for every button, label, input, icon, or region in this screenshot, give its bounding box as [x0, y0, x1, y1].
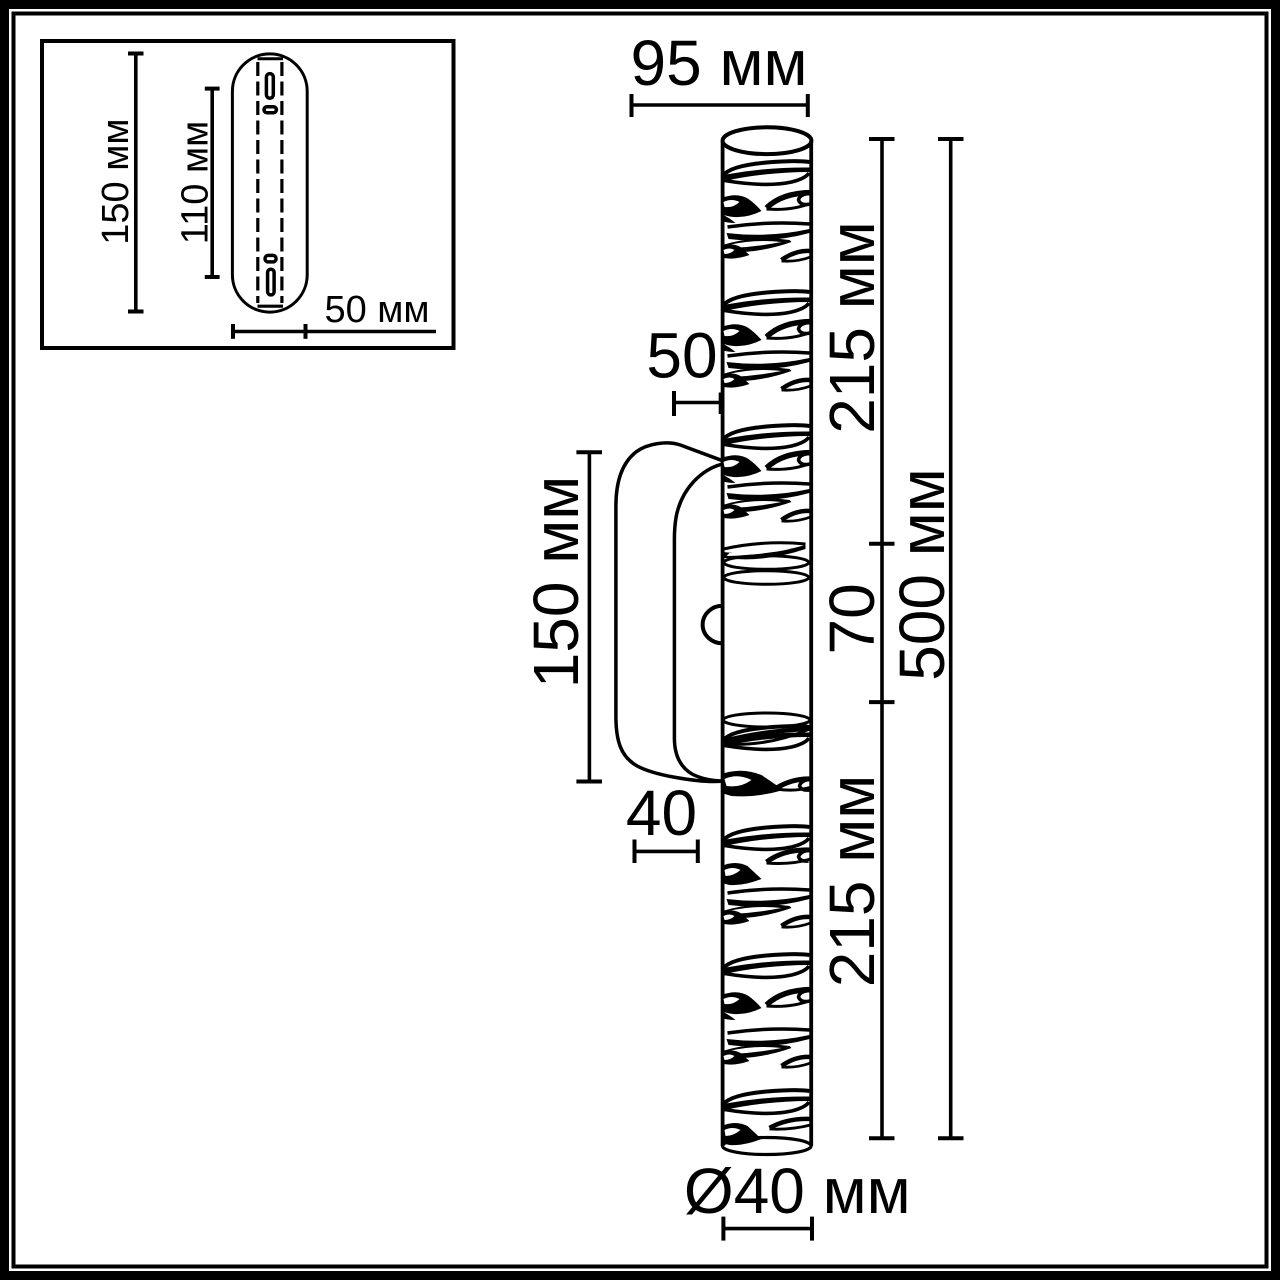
- svg-text:150 мм: 150 мм: [95, 118, 137, 244]
- svg-text:150 мм: 150 мм: [520, 476, 592, 689]
- svg-text:215 мм: 215 мм: [816, 775, 888, 988]
- svg-text:215 мм: 215 мм: [816, 221, 888, 434]
- svg-text:95 мм: 95 мм: [631, 27, 808, 99]
- svg-text:70: 70: [816, 583, 888, 654]
- svg-text:500 мм: 500 мм: [886, 468, 958, 681]
- svg-text:110 мм: 110 мм: [175, 121, 217, 244]
- svg-text:50: 50: [646, 320, 717, 392]
- svg-text:40: 40: [626, 777, 697, 849]
- svg-text:50 мм: 50 мм: [324, 289, 429, 331]
- svg-text:Ø40 мм: Ø40 мм: [684, 1155, 911, 1227]
